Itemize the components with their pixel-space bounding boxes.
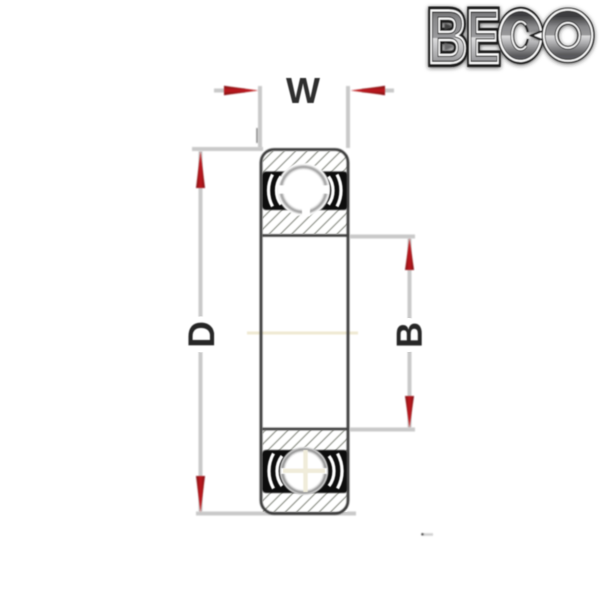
- svg-text:D: D: [181, 321, 222, 348]
- svg-text:B: B: [389, 322, 430, 348]
- svg-text:B: B: [427, 0, 467, 80]
- svg-text:E: E: [466, 0, 499, 80]
- svg-text:W: W: [286, 70, 320, 111]
